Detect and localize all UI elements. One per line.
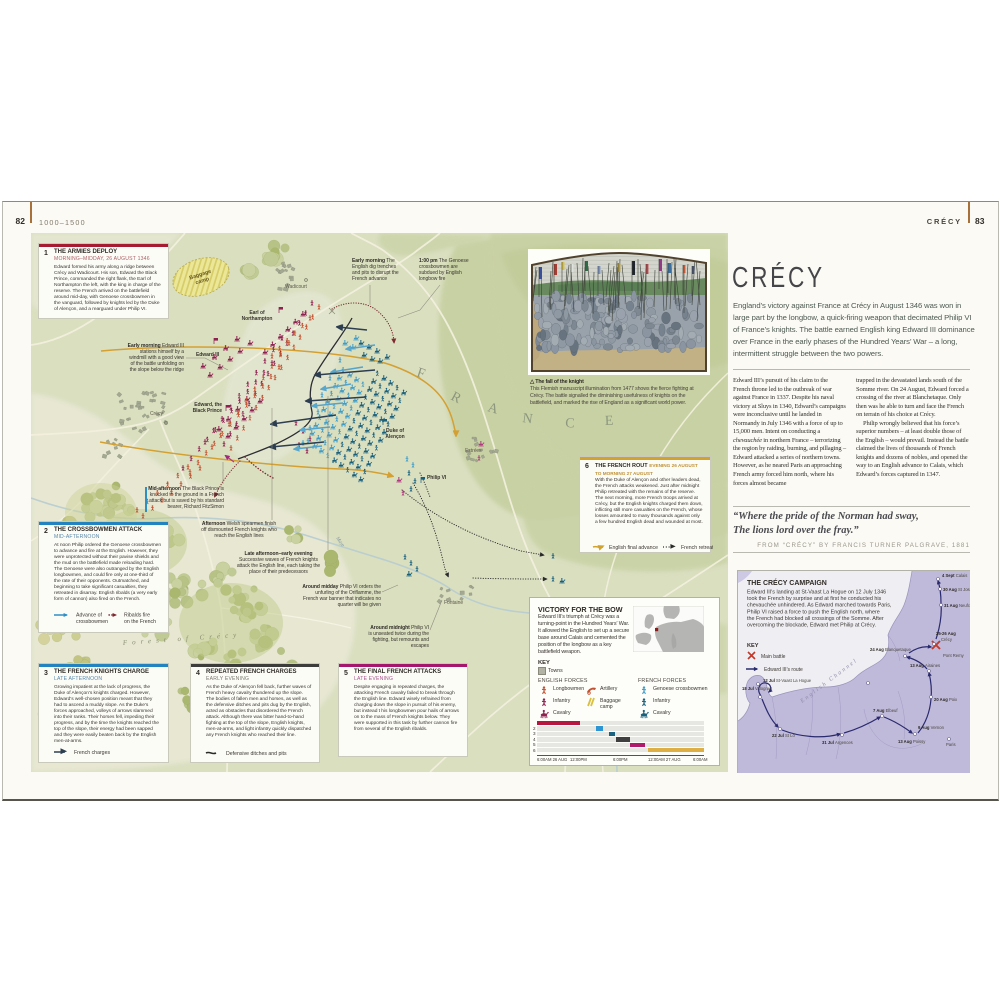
svg-text:N: N xyxy=(521,411,533,427)
svg-text:9 Aug Vernon: 9 Aug Vernon xyxy=(918,725,945,730)
svg-text:Edward III's landing at St-Vaa: Edward III's landing at St-Vaast La Hogu… xyxy=(747,590,886,596)
svg-text:30 Aug St Josse: 30 Aug St Josse xyxy=(943,587,970,592)
svg-text:Crécy: Crécy xyxy=(941,637,953,642)
svg-text:Ribalds fire: Ribalds fire xyxy=(124,613,150,619)
svg-text:Paris: Paris xyxy=(946,742,956,747)
svg-text:French charges: French charges xyxy=(74,750,110,756)
svg-text:13 Aug Airaines: 13 Aug Airaines xyxy=(910,663,940,668)
svg-text:Philip VI raised a force to pu: Philip VI raised a force to push the Eng… xyxy=(747,609,880,615)
svg-text:24 Aug Blanquetaque: 24 Aug Blanquetaque xyxy=(870,647,912,652)
svg-text:THE CRÉCY CAMPAIGN: THE CRÉCY CAMPAIGN xyxy=(747,578,827,587)
svg-text:20 Aug Poix: 20 Aug Poix xyxy=(934,697,958,702)
svg-text:4 Sept Calais: 4 Sept Calais xyxy=(942,573,967,578)
svg-text:22 Jul St Lô: 22 Jul St Lô xyxy=(772,733,795,738)
svg-text:31 Jul Argences: 31 Jul Argences xyxy=(822,740,853,745)
svg-text:13 Aug Poissy: 13 Aug Poissy xyxy=(898,739,926,744)
svg-text:Defensive ditches and pits: Defensive ditches and pits xyxy=(226,751,287,757)
svg-text:E: E xyxy=(605,414,614,429)
svg-text:18 Jul Valognes: 18 Jul Valognes xyxy=(742,686,772,691)
svg-text:25-26 Aug: 25-26 Aug xyxy=(936,631,956,636)
svg-text:Edward III’s route: Edward III’s route xyxy=(764,667,803,673)
svg-text:the French had blocked all cro: the French had blocked all crossings of … xyxy=(747,616,884,622)
svg-text:C: C xyxy=(565,416,575,432)
svg-text:overcoming the blockade, Edwar: overcoming the blockade, Edward met Phil… xyxy=(747,623,876,629)
svg-text:KEY: KEY xyxy=(747,643,759,649)
svg-text:French retreat: French retreat xyxy=(681,545,713,551)
svg-text:7 Aug Elbeuf: 7 Aug Elbeuf xyxy=(873,708,898,713)
svg-text:chevauchée unhindered. As Edwa: chevauchée unhindered. As Edward marched… xyxy=(747,603,892,609)
svg-text:took the French by surprise an: took the French by surprise and at first… xyxy=(747,596,882,602)
svg-text:Advance of: Advance of xyxy=(76,613,103,619)
svg-text:crossbowmen: crossbowmen xyxy=(76,619,108,625)
svg-text:on the French: on the French xyxy=(124,619,156,625)
svg-text:31 Aug Neufchâtel: 31 Aug Neufchâtel xyxy=(944,603,970,608)
svg-text:Pont Remy: Pont Remy xyxy=(943,653,965,658)
svg-text:12 Jul St-Vaast La Hogue: 12 Jul St-Vaast La Hogue xyxy=(763,678,812,683)
svg-text:Main battle: Main battle xyxy=(761,654,786,660)
svg-text:English final advance: English final advance xyxy=(609,545,658,551)
